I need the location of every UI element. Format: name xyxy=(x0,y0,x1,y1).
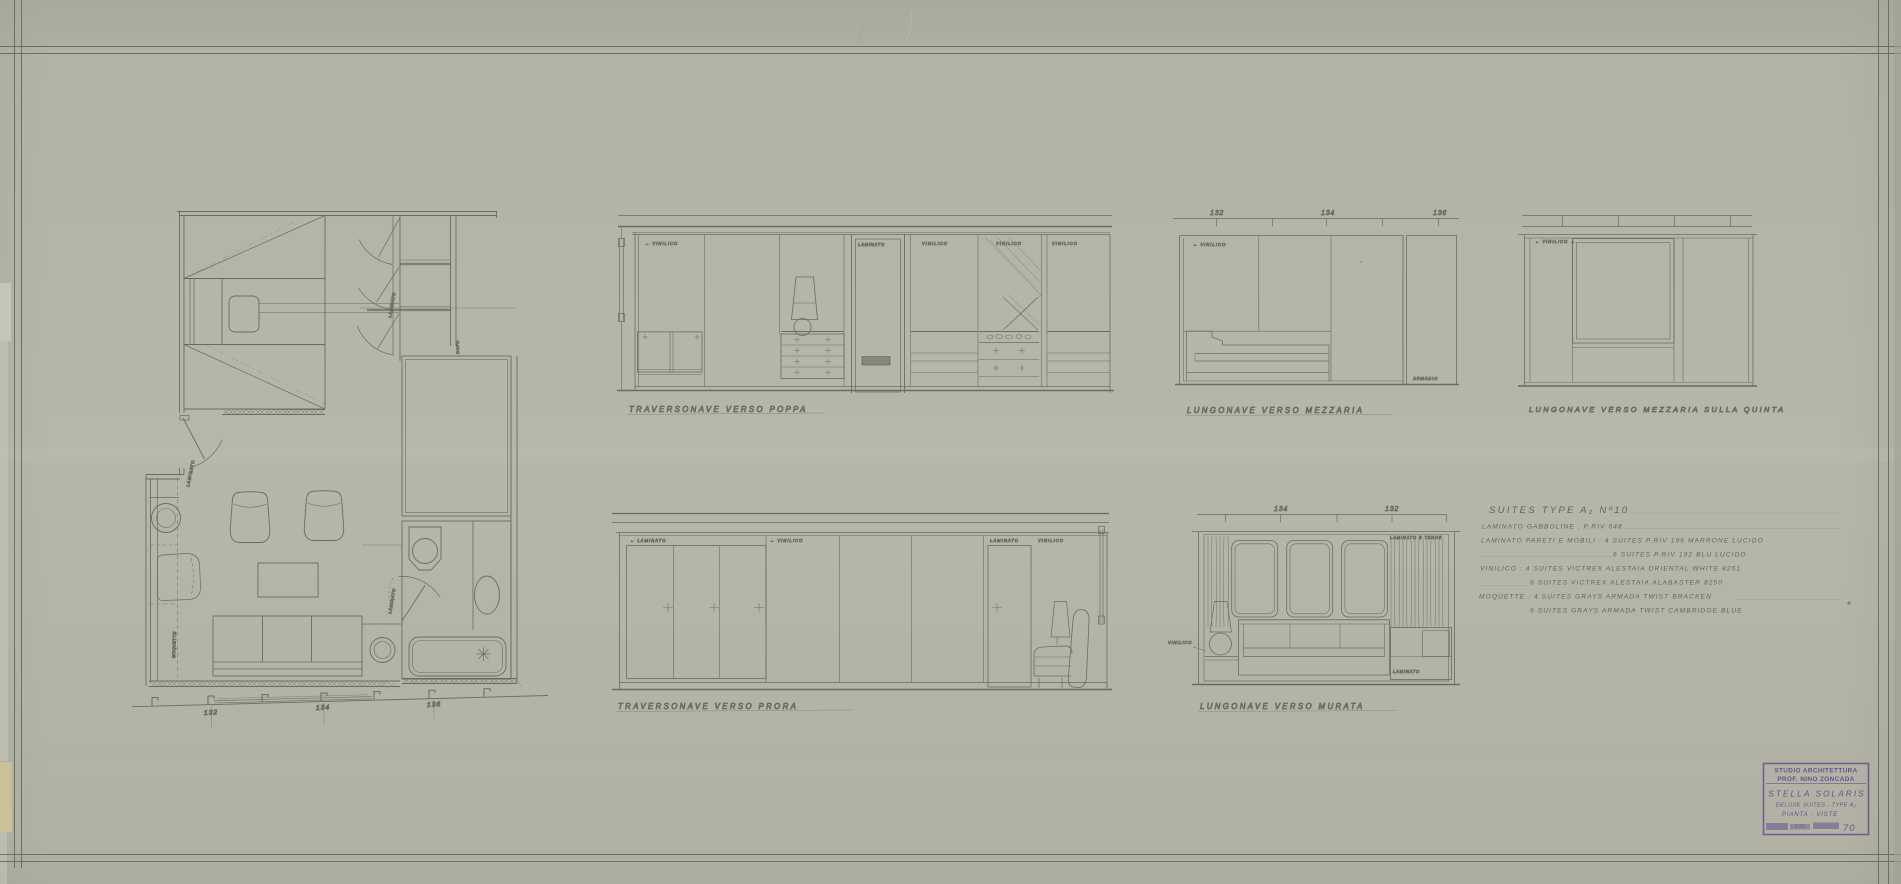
svg-text:LAMINATO: LAMINATO xyxy=(858,242,885,247)
svg-text:← VINILICO →: ← VINILICO → xyxy=(1535,239,1576,244)
svg-text:SUITES TYPE A₂ Nº10: SUITES TYPE A₂ Nº10 xyxy=(1489,505,1629,516)
svg-text:TRAVERSONAVE VERSO PRORA: TRAVERSONAVE VERSO PRORA xyxy=(618,702,798,711)
svg-text:VINILICO: VINILICO xyxy=(922,241,948,246)
svg-text:STELLA SOLARIS: STELLA SOLARIS xyxy=(1768,789,1866,799)
svg-text:TRAVERSONAVE VERSO POPPA: TRAVERSONAVE VERSO POPPA xyxy=(629,405,808,414)
svg-text:VINILICO: VINILICO xyxy=(996,241,1022,246)
svg-text:← LAMINATO: ← LAMINATO xyxy=(630,538,666,543)
svg-text:← VINILICO: ← VINILICO xyxy=(1193,242,1226,247)
svg-text:← VINILICO: ← VINILICO xyxy=(770,538,803,543)
svg-text:LUNGONAVE VERSO MEZZARIA: LUNGONAVE VERSO MEZZARIA xyxy=(1187,406,1364,415)
svg-text:LAMINATO PARETI E MOBILI : 4 S: LAMINATO PARETI E MOBILI : 4 SUITES P.RI… xyxy=(1481,538,1764,545)
svg-text:136: 136 xyxy=(1433,210,1447,217)
svg-text:DOPO: DOPO xyxy=(455,340,460,354)
svg-text:LAMINATO E TENDE: LAMINATO E TENDE xyxy=(1390,535,1442,540)
svg-text:LAMINATO: LAMINATO xyxy=(990,538,1019,543)
svg-text:LUNGONAVE VERSO MEZZARIA SU: LUNGONAVE VERSO MEZZARIA SULLA QUINTA xyxy=(1529,405,1786,414)
svg-text:ARMADIO: ARMADIO xyxy=(1412,376,1438,381)
svg-text:VINILICO: VINILICO xyxy=(1052,241,1078,246)
svg-text:LUNGONAVE VERSO MURATA: LUNGONAVE VERSO MURATA xyxy=(1200,702,1365,711)
svg-text:6 SUITES GRAYS ARMADA TWIST: 6 SUITES GRAYS ARMADA TWIST CAMBRIDGE BL… xyxy=(1530,608,1743,615)
svg-text:PIANTA - VISTE: PIANTA - VISTE xyxy=(1782,811,1838,818)
svg-text:132: 132 xyxy=(1385,506,1399,513)
svg-text:134: 134 xyxy=(1321,210,1335,217)
svg-text:← VINILICO: ← VINILICO xyxy=(645,241,678,246)
svg-text:70: 70 xyxy=(1843,823,1856,834)
svg-text:6 SUITES P.RIV 192 BLU LUCI: 6 SUITES P.RIV 192 BLU LUCIDO xyxy=(1613,552,1747,559)
svg-text:LAMINATO: LAMINATO xyxy=(1393,669,1420,674)
svg-text:PROF. NINO ZONCADA: PROF. NINO ZONCADA xyxy=(1777,776,1855,783)
svg-text:VINILICO: VINILICO xyxy=(1168,640,1192,645)
svg-text:MOQUETTE: MOQUETTE xyxy=(171,631,177,658)
svg-text:134: 134 xyxy=(1274,506,1288,513)
svg-text:132: 132 xyxy=(1210,210,1224,217)
svg-text:STUDIO ARCHITETTURA: STUDIO ARCHITETTURA xyxy=(1774,768,1857,775)
svg-text:132: 132 xyxy=(204,709,219,717)
svg-text:VINILICO: VINILICO xyxy=(1038,538,1064,543)
svg-text:VINILICO : 4 SUITES VICTREX A: VINILICO : 4 SUITES VICTREX ALESTAIA ORI… xyxy=(1480,566,1741,573)
svg-text:DELUXE SUITES - TYPE A₂: DELUXE SUITES - TYPE A₂ xyxy=(1776,803,1857,809)
svg-text:LAMINATO GABBOLINE , P.RIV 048: LAMINATO GABBOLINE , P.RIV 048 xyxy=(1482,524,1623,531)
svg-text:1:25: 1:25 xyxy=(1795,824,1805,830)
svg-text:6 SUITES VICTREX ALESTAIA A: 6 SUITES VICTREX ALESTAIA ALABASTER 8250 xyxy=(1530,580,1723,587)
svg-text:134: 134 xyxy=(316,704,331,712)
svg-text:MOQUETTE : 4 SUITES GRAYS ARM: MOQUETTE : 4 SUITES GRAYS ARMADA TWIST B… xyxy=(1479,594,1712,601)
